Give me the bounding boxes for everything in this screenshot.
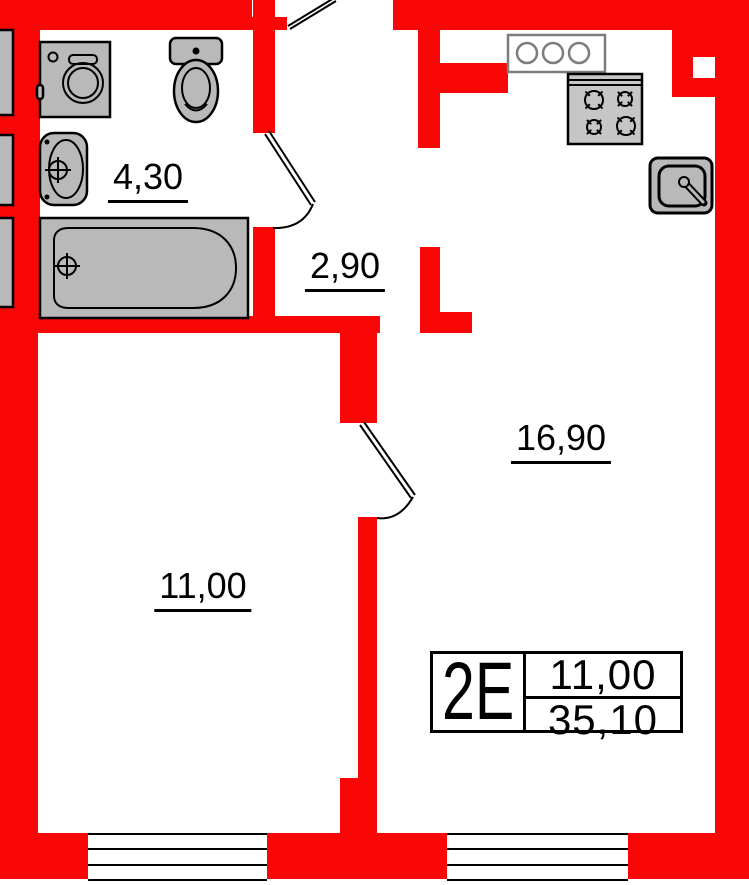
room-kitchen-door <box>360 422 415 518</box>
unit-type: 2E <box>442 651 514 733</box>
toilet <box>170 38 222 122</box>
room-area-label: 11,00 <box>154 568 251 612</box>
entrance-door <box>288 0 336 29</box>
neighbor-fixture-1 <box>0 30 13 115</box>
floor-plan: 4,30 2,90 16,90 11,00 2E 11,00 35,10 <box>0 0 749 885</box>
vent-block <box>508 35 605 72</box>
neighbor-fixture-3 <box>0 218 13 307</box>
total-area-value: 35,10 <box>526 699 680 741</box>
kitchen-sink <box>650 158 712 213</box>
fixtures-layer <box>0 0 749 885</box>
bathroom-area-label: 4,30 <box>108 159 188 203</box>
kitchen-living-area-label: 16,90 <box>511 420 611 464</box>
washing-machine <box>37 42 110 117</box>
bathroom-door <box>265 131 315 228</box>
neighbor-fixture-2 <box>0 135 13 205</box>
hallway-area-label: 2,90 <box>305 248 385 292</box>
unit-stamp: 2E 11,00 35,10 <box>430 651 683 733</box>
washbasin <box>40 133 87 205</box>
stove <box>568 74 642 144</box>
bathtub <box>40 218 248 318</box>
living-area-value: 11,00 <box>526 654 680 699</box>
unit-type-cell: 2E <box>433 654 526 730</box>
